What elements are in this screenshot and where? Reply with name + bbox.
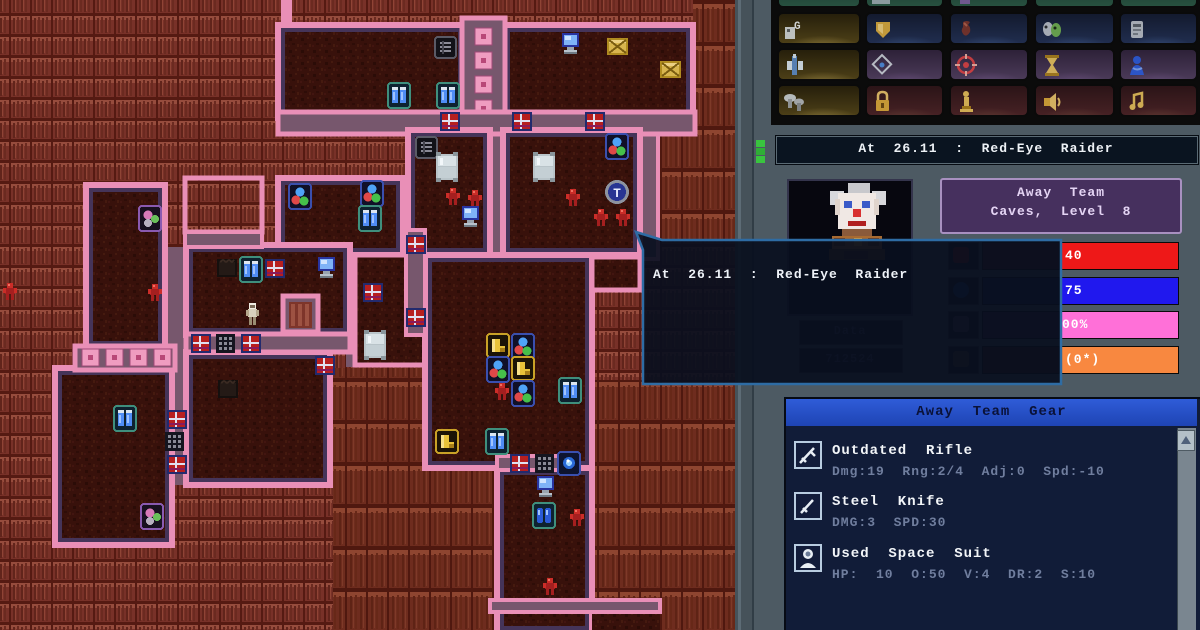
svg-text:G: G	[794, 21, 801, 33]
